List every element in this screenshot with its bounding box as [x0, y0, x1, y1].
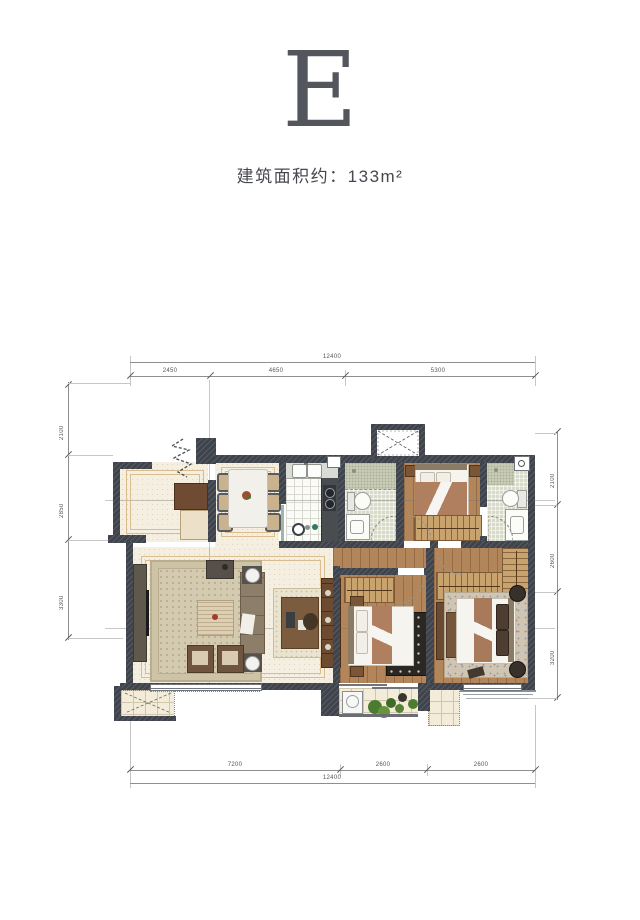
wall	[214, 455, 379, 463]
bath-vent-dot	[518, 460, 525, 467]
dim-top-1: 2450	[140, 368, 200, 374]
dim-right-2: 2600	[550, 528, 556, 568]
shower-divider	[345, 489, 396, 491]
kitchen-sink	[292, 464, 307, 478]
extension-line	[130, 718, 131, 788]
wall	[208, 480, 216, 542]
vanity-basin	[350, 520, 364, 534]
door-arc-master	[437, 549, 463, 575]
pillow	[496, 604, 509, 630]
armchair-cushion	[192, 651, 208, 665]
entry-door-zigzag	[168, 438, 198, 478]
dim-line-top-total	[130, 362, 535, 363]
wall	[196, 438, 216, 464]
wall	[528, 455, 535, 690]
kitchen-vent	[327, 456, 341, 468]
shower-zone-2	[487, 462, 514, 485]
coffee-table-decor	[212, 614, 218, 620]
floorplan-sheet: E 建筑面积约：133m² 12400 2450 4650 5300 7200 …	[0, 0, 640, 920]
dim-left-1: 2100	[59, 400, 65, 440]
door-arc-bedroom-2	[405, 515, 431, 541]
ac-platform-right	[428, 688, 460, 726]
hallway	[333, 548, 434, 568]
dim-line-top-seg	[130, 376, 535, 377]
armchair	[187, 645, 214, 673]
extension-line	[68, 455, 113, 456]
armchair	[217, 645, 244, 673]
side-table	[245, 568, 260, 583]
extension-line	[68, 638, 123, 639]
floor-drain	[352, 469, 356, 473]
wall	[321, 683, 339, 716]
headboard	[415, 464, 467, 470]
bed-quilt	[372, 606, 392, 664]
kitchen-glass-door	[281, 505, 284, 541]
shaft-wall	[419, 424, 425, 458]
balcony-rail	[339, 714, 418, 717]
dim-line-left	[68, 382, 69, 640]
tv	[146, 590, 149, 636]
kitchen-bowl	[292, 523, 305, 536]
wall	[461, 541, 535, 548]
nightstand	[350, 666, 364, 677]
bookshelf-item	[325, 590, 331, 596]
dim-right-3: 3200	[550, 625, 556, 665]
dim-line-bottom-seg	[130, 770, 535, 771]
desk-chair	[303, 613, 318, 630]
window-sill-line	[150, 691, 260, 693]
extension-line	[535, 356, 536, 386]
plant-pot	[398, 693, 407, 702]
desk-laptop	[286, 612, 295, 628]
sofa-throw	[240, 613, 256, 635]
washer-door	[346, 695, 359, 708]
kitchen-sink	[307, 464, 322, 478]
console-table	[206, 560, 234, 579]
area-label: 建筑面积约：133m²	[0, 162, 640, 187]
shoe-cabinet	[180, 510, 209, 540]
bed-quilt	[415, 482, 467, 516]
ac-platform-dashline	[174, 690, 176, 716]
wall	[279, 541, 404, 548]
extension-line	[535, 433, 557, 434]
shower-zone-1	[345, 462, 396, 489]
dim-bottom-2: 2600	[353, 762, 413, 768]
toilet-bowl	[502, 490, 519, 507]
unit-letter: E	[0, 36, 640, 145]
bedside-lamp	[509, 661, 526, 678]
table-centerpiece-leaf	[247, 495, 251, 499]
wall	[114, 716, 176, 721]
extension-line	[68, 383, 130, 384]
wall	[333, 566, 340, 683]
dim-right-1: 2100	[550, 448, 556, 488]
headboard	[348, 606, 354, 664]
wall	[338, 462, 345, 548]
extension-line	[345, 370, 346, 386]
dim-top-2: 4650	[246, 368, 306, 374]
window-master	[463, 684, 522, 691]
wall	[430, 541, 438, 548]
door-arc-bedroom-3	[398, 577, 424, 603]
floor-drain	[494, 468, 498, 472]
foyer-cabinet	[174, 483, 208, 510]
bookshelf-item	[325, 644, 331, 650]
wall	[426, 548, 434, 683]
stove-burner	[325, 499, 335, 509]
wall	[340, 568, 398, 575]
wall	[113, 462, 120, 542]
pillow	[496, 630, 509, 656]
window-living	[150, 684, 262, 691]
stove-burner	[325, 488, 335, 498]
shaft-cross	[377, 430, 419, 456]
bed-quilt	[474, 598, 492, 662]
wall	[480, 462, 487, 507]
armchair-cushion	[222, 651, 238, 665]
dim-bottom-3: 2600	[451, 762, 511, 768]
pillow	[356, 610, 368, 632]
wall	[418, 683, 430, 711]
wall	[126, 542, 133, 690]
dim-line-right	[557, 432, 558, 700]
bay-window-line	[463, 694, 533, 695]
extension-line	[68, 540, 113, 541]
toilet-bowl	[354, 492, 371, 510]
wall	[396, 462, 404, 548]
wall	[279, 462, 286, 504]
dim-top-total: 12400	[302, 354, 362, 360]
dim-top-3: 5300	[408, 368, 468, 374]
side-table	[245, 656, 260, 671]
dim-bottom-total: 12400	[302, 775, 362, 781]
ac-cross	[124, 692, 172, 714]
extension-line	[535, 705, 536, 788]
plant	[395, 704, 404, 713]
dim-bottom-1: 7200	[205, 762, 265, 768]
dim-left-3: 3300	[59, 570, 65, 610]
sliding-door-panel	[339, 684, 387, 686]
dim-left-2: 2850	[59, 478, 65, 518]
tv-bench	[133, 564, 147, 662]
extension-line	[130, 356, 131, 386]
plant	[408, 699, 418, 709]
kitchen-plant-dot	[312, 524, 318, 530]
bedside-lamp	[509, 585, 526, 602]
kitchen-bowl-small	[305, 525, 310, 530]
bookshelf-item	[325, 617, 331, 623]
dim-line-bottom-total	[130, 783, 535, 784]
pillow	[356, 632, 368, 654]
sliding-door-panel	[372, 687, 418, 689]
door-arc-bath-1	[371, 516, 396, 541]
bay-window-line	[466, 698, 528, 699]
console-decor	[222, 564, 228, 570]
wall	[114, 686, 121, 720]
door-arc-bath-2	[488, 516, 513, 541]
